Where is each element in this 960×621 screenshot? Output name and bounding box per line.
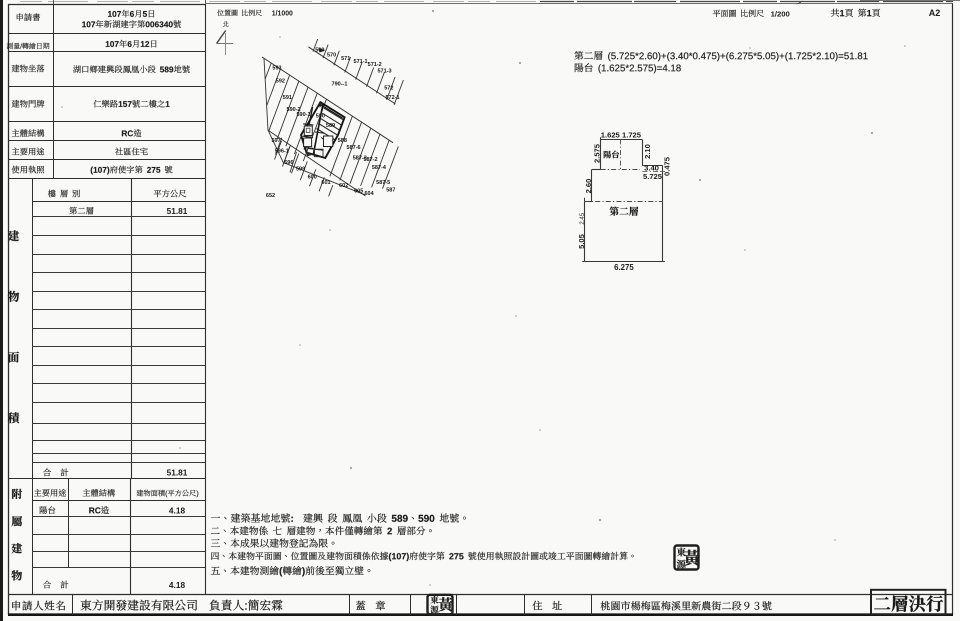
svg-text:5.725: 5.725 [643,172,663,181]
svg-text:597: 597 [272,138,281,144]
svg-text:1.625: 1.625 [601,130,621,139]
svg-text:5.05: 5.05 [577,233,586,249]
svg-text:601: 601 [321,180,330,186]
svg-text:572-1: 572-1 [385,95,399,101]
svg-text:590-1: 590-1 [296,112,310,118]
svg-text:587-5: 587-5 [376,180,390,186]
svg-text:51.81: 51.81 [167,468,188,478]
svg-text:591: 591 [283,95,292,101]
svg-text:1.725: 1.725 [622,130,642,139]
svg-text:2.575: 2.575 [592,143,601,163]
svg-text:571-1: 571-1 [354,59,368,65]
svg-text:596: 596 [284,160,293,166]
svg-text:1/200: 1/200 [771,9,790,18]
svg-text:604: 604 [365,191,375,197]
svg-text:588: 588 [338,138,347,144]
svg-text:589: 589 [326,123,335,129]
svg-text:602: 602 [339,183,348,189]
svg-text:596-1: 596-1 [275,149,289,155]
svg-text:A2: A2 [929,8,941,18]
svg-text:569: 569 [315,48,324,54]
svg-text:790--1: 790--1 [332,82,348,88]
svg-text:652: 652 [266,193,275,199]
svg-text:0.475: 0.475 [663,156,672,176]
svg-text:2.45: 2.45 [580,212,586,224]
svg-text:587: 587 [386,188,395,194]
svg-text:572: 572 [384,86,393,92]
svg-text:592: 592 [276,79,285,85]
svg-text:2.60: 2.60 [584,179,593,194]
svg-text:593: 593 [272,66,281,72]
svg-text:2.10: 2.10 [643,144,652,159]
svg-text:571-3: 571-3 [377,68,391,74]
svg-text:570: 570 [327,53,336,59]
svg-text:1/1000: 1/1000 [272,10,293,17]
svg-text:587-4: 587-4 [372,165,387,171]
svg-text:587-6: 587-6 [347,145,361,151]
svg-text:587-2: 587-2 [363,157,377,163]
svg-text:51.81: 51.81 [167,206,188,216]
svg-text:4.18: 4.18 [169,580,186,590]
svg-text:571-2: 571-2 [368,62,382,68]
svg-text:590: 590 [316,113,325,119]
svg-text:605: 605 [354,189,363,195]
svg-text:4.18: 4.18 [169,505,186,515]
svg-text:6.275: 6.275 [614,263,634,272]
svg-text:600: 600 [308,175,317,181]
svg-text:599: 599 [296,167,305,173]
svg-text:571: 571 [341,56,350,62]
